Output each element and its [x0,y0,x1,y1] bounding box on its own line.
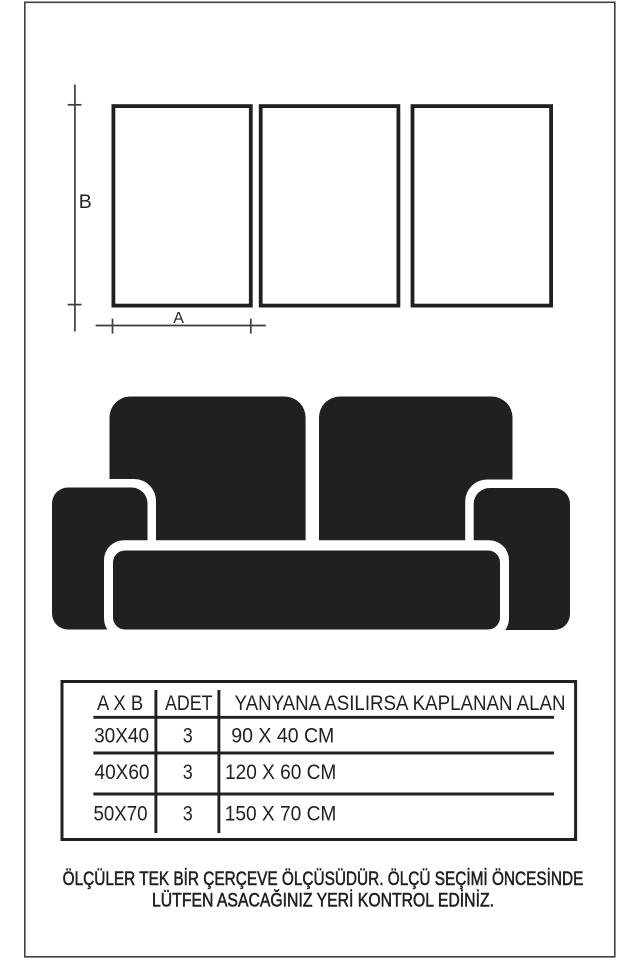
svg-text:120 X 60 CM: 120 X 60 CM [225,761,336,784]
svg-text:3: 3 [183,803,193,826]
svg-text:40X60: 40X60 [95,761,150,784]
svg-text:3: 3 [183,725,193,748]
svg-text:ADET: ADET [165,691,213,715]
svg-text:LÜTFEN ASACAĞINIZ YERİ KONTROL: LÜTFEN ASACAĞINIZ YERİ KONTROL EDİNİZ. [152,890,494,912]
svg-text:A: A [173,310,184,327]
svg-text:50X70: 50X70 [94,803,148,826]
svg-text:YANYANA ASILIRSA KAPLANAN ALAN: YANYANA ASILIRSA KAPLANAN ALAN [235,691,566,715]
svg-text:90 X 40 CM: 90 X 40 CM [231,725,334,748]
svg-text:3: 3 [183,761,193,784]
svg-text:A X B: A X B [97,691,143,715]
svg-text:30X40: 30X40 [94,725,149,748]
svg-text:B: B [79,191,92,213]
svg-text:150 X 70 CM: 150 X 70 CM [225,803,337,826]
svg-text:ÖLÇÜLER TEK BİR ÇERÇEVE ÖLÇÜSÜ: ÖLÇÜLER TEK BİR ÇERÇEVE ÖLÇÜSÜDÜR. ÖLÇÜ … [63,869,584,890]
